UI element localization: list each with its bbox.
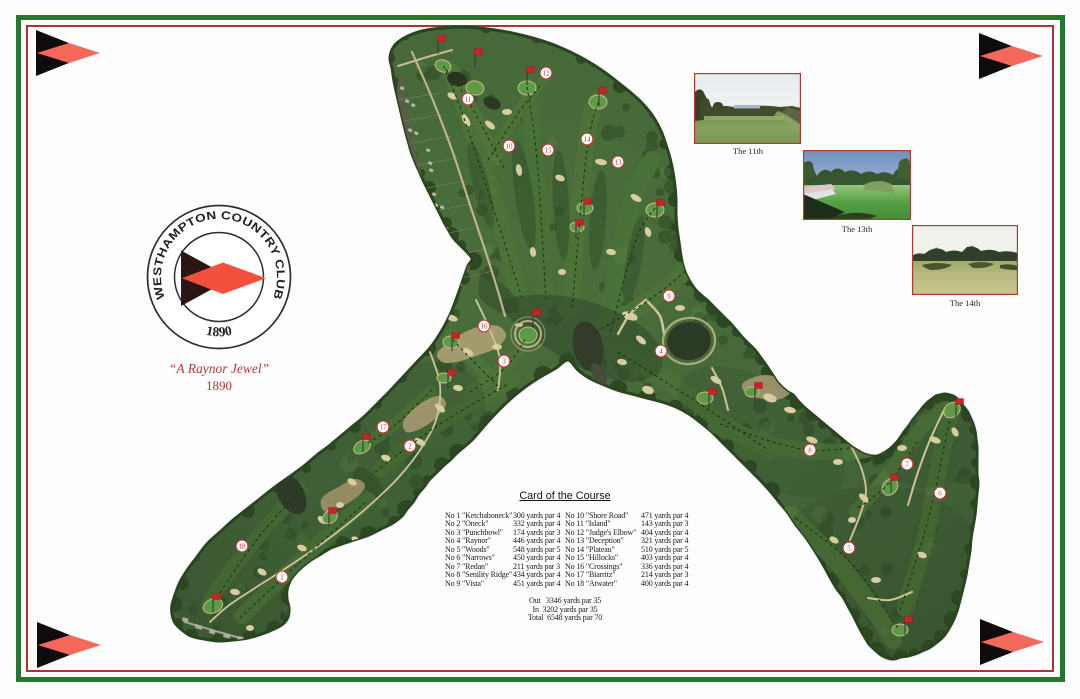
svg-text:7: 7	[905, 461, 909, 469]
svg-text:12: 12	[543, 70, 551, 78]
svg-text:9: 9	[667, 293, 671, 301]
svg-text:3: 3	[502, 358, 506, 366]
svg-text:5: 5	[847, 545, 851, 553]
svg-text:4: 4	[659, 348, 663, 356]
svg-text:8: 8	[808, 447, 812, 455]
svg-text:17: 17	[380, 424, 388, 432]
svg-text:1890: 1890	[205, 323, 233, 340]
svg-text:11: 11	[465, 96, 472, 104]
svg-text:1: 1	[280, 574, 284, 582]
svg-text:15: 15	[545, 147, 553, 155]
svg-text:2: 2	[408, 443, 412, 451]
svg-text:18: 18	[239, 543, 247, 551]
svg-text:14: 14	[584, 136, 592, 144]
svg-text:13: 13	[615, 159, 623, 167]
svg-text:6: 6	[938, 490, 942, 498]
svg-text:16: 16	[481, 323, 489, 331]
svg-text:10: 10	[506, 143, 514, 151]
